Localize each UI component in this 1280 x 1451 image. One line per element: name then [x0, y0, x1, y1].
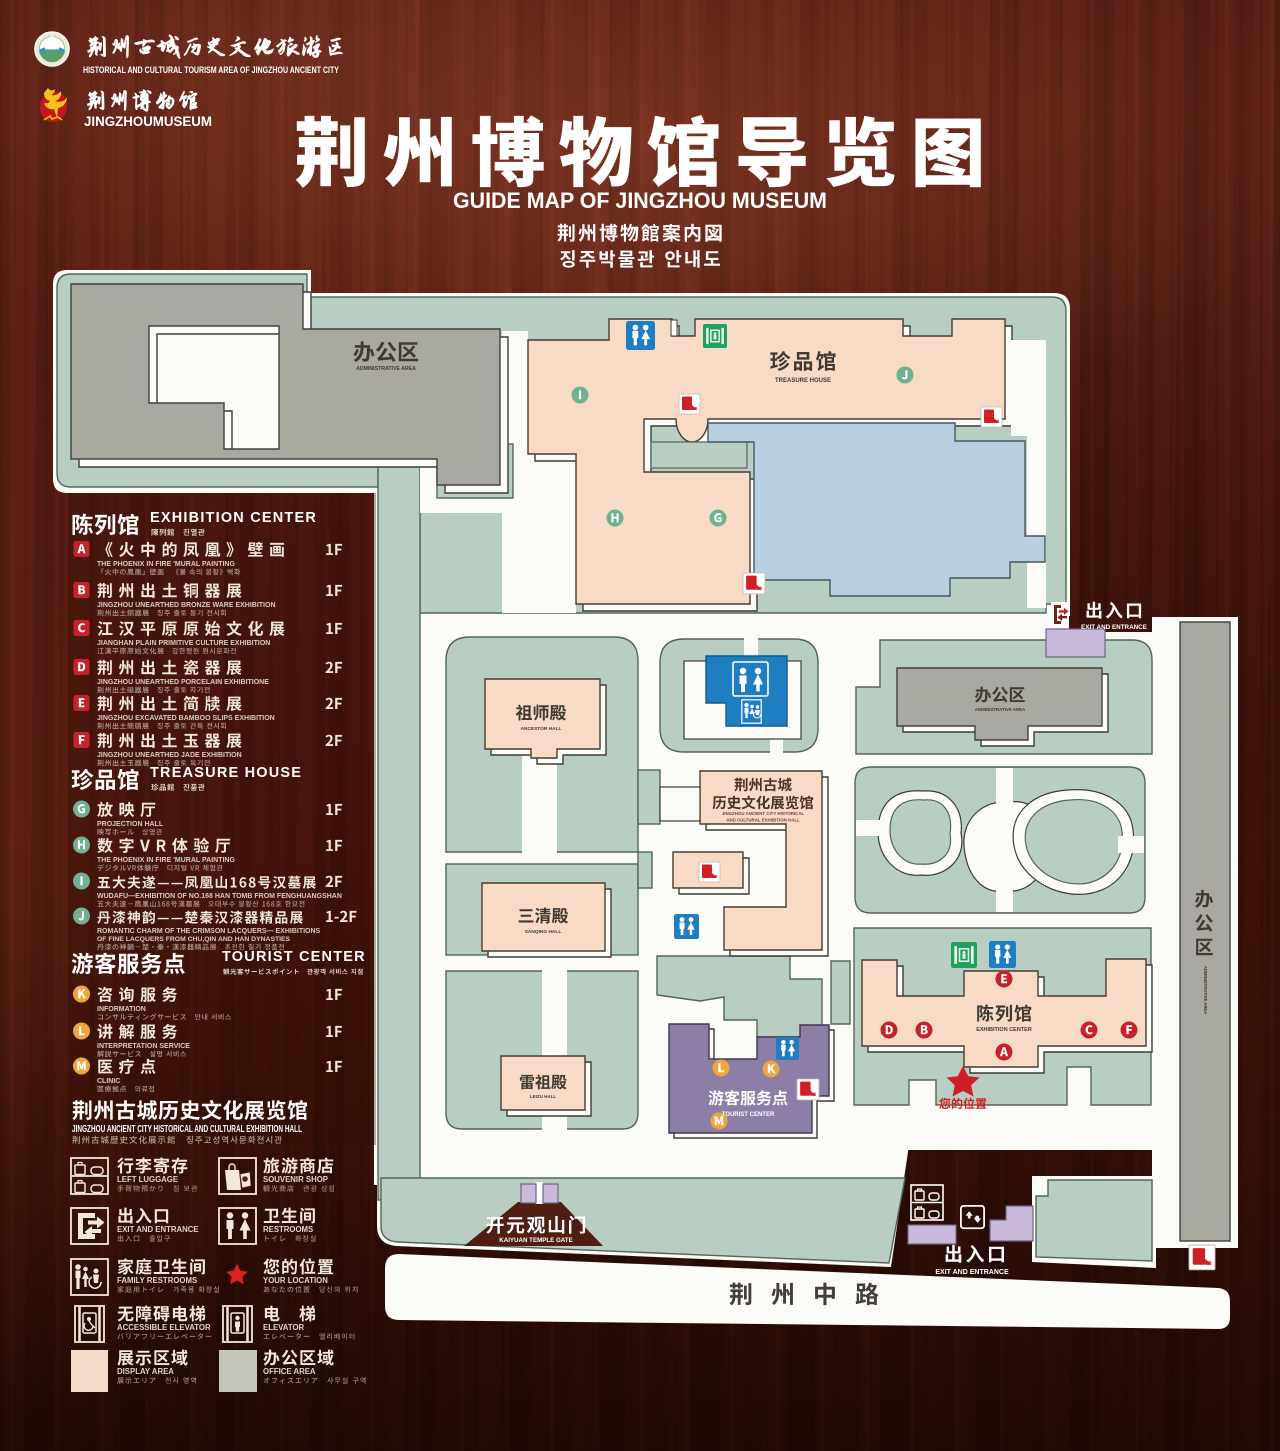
svg-text:AND CULTURAL EXHIBITION HALL: AND CULTURAL EXHIBITION HALL: [726, 818, 800, 823]
svg-text:TOURIST CENTER: TOURIST CENTER: [222, 949, 366, 965]
svg-text:ACCESSIBLE ELEVATOR: ACCESSIBLE ELEVATOR: [117, 1323, 211, 1332]
svg-text:SANQING HALL: SANQING HALL: [525, 929, 562, 935]
svg-text:ROMANTIC CHARM OF THE CRIMSON: ROMANTIC CHARM OF THE CRIMSON LACQUERS— …: [97, 928, 321, 935]
svg-text:TREASURE HOUSE: TREASURE HOUSE: [150, 765, 302, 781]
svg-text:JIANGHAN PLAIN PRIMITIVE CULTU: JIANGHAN PLAIN PRIMITIVE CULTURE EXHIBIT…: [97, 640, 270, 647]
svg-text:ELEVATOR: ELEVATOR: [263, 1323, 305, 1332]
svg-text:ADMINISTRATIVE AREA: ADMINISTRATIVE AREA: [1203, 966, 1208, 1014]
svg-text:KAIYUAN TEMPLE GATE: KAIYUAN TEMPLE GATE: [499, 1237, 572, 1244]
svg-text:LEFT LUGGAGE: LEFT LUGGAGE: [117, 1175, 178, 1184]
svg-text:JINGZHOU ANCIENT CITY HISTORIC: JINGZHOU ANCIENT CITY HISTORICAL: [722, 811, 805, 816]
svg-text:CLINIC: CLINIC: [97, 1078, 120, 1085]
svg-text:FAMILY RESTROOMS: FAMILY RESTROOMS: [117, 1276, 197, 1285]
svg-text:JINGZHOU UNEARTHED JADE EXHIBI: JINGZHOU UNEARTHED JADE EXHIBITION: [97, 752, 242, 759]
svg-text:EXHIBITION CENTER: EXHIBITION CENTER: [150, 510, 317, 526]
svg-text:JINGZHOU EXCAVATED BAMBOO SLIP: JINGZHOU EXCAVATED BAMBOO SLIPS EXHIBITI…: [97, 715, 275, 722]
svg-text:YOUR LOCATION: YOUR LOCATION: [263, 1276, 328, 1285]
svg-text:JINGZHOU ANCIENT CITY HISTORIC: JINGZHOU ANCIENT CITY HISTORICAL AND CUL…: [72, 1124, 302, 1135]
svg-text:INTERPRETATION SERVICE: INTERPRETATION SERVICE: [97, 1043, 190, 1050]
svg-text:INFORMATION: INFORMATION: [97, 1006, 146, 1013]
svg-text:TREASURE HOUSE: TREASURE HOUSE: [775, 378, 831, 384]
svg-text:JINGZHOU UNEARTHED PORCELAIN E: JINGZHOU UNEARTHED PORCELAIN EXHIBITIONE: [97, 679, 269, 686]
svg-text:EXIT AND ENTRANCE: EXIT AND ENTRANCE: [935, 1269, 1009, 1276]
svg-text:JINGZHOUMUSEUM: JINGZHOUMUSEUM: [84, 114, 212, 129]
svg-text:JINGZHOU UNEARTHED BRONZE WARE: JINGZHOU UNEARTHED BRONZE WARE EXHIBITIO…: [97, 602, 276, 609]
svg-text:HISTORICAL AND CULTURAL TOURIS: HISTORICAL AND CULTURAL TOURISM AREA OF …: [83, 65, 339, 76]
svg-text:DISPLAY AREA: DISPLAY AREA: [117, 1367, 174, 1376]
svg-text:LEIZU HALL: LEIZU HALL: [530, 1094, 556, 1099]
svg-text:OFFICE AREA: OFFICE AREA: [263, 1367, 316, 1376]
svg-text:PROJECTION HALL: PROJECTION HALL: [97, 821, 164, 828]
svg-text:WUDAFU—EXHIBITION OF NO.168 HA: WUDAFU—EXHIBITION OF NO.168 HAN TOMB FRO…: [97, 893, 342, 900]
svg-text:THE PHOENIX IN FIRE 'MURAL PAI: THE PHOENIX IN FIRE 'MURAL PAINTING: [97, 857, 235, 864]
svg-text:TOURIST CENTER: TOURIST CENTER: [722, 1112, 775, 1118]
svg-text:ADMINISTRATIVE AREA: ADMINISTRATIVE AREA: [975, 707, 1026, 712]
svg-text:OF FINE LACQUERS FROM CHU,QIN: OF FINE LACQUERS FROM CHU,QIN AND HAN DY…: [97, 936, 291, 943]
svg-text:SOUVENIR SHOP: SOUVENIR SHOP: [263, 1175, 328, 1184]
svg-text:GUIDE MAP OF JINGZHOU MUSEUM: GUIDE MAP OF JINGZHOU MUSEUM: [453, 188, 827, 213]
svg-text:EXIT AND ENTRANCE: EXIT AND ENTRANCE: [1081, 624, 1147, 631]
svg-text:ADMINISTRATIVE AREA: ADMINISTRATIVE AREA: [356, 366, 416, 372]
svg-text:THE PHOENIX IN FIRE 'MURAL PAI: THE PHOENIX IN FIRE 'MURAL PAINTING: [97, 561, 235, 568]
svg-text:RESTROOMS: RESTROOMS: [263, 1225, 313, 1234]
svg-text:EXIT AND ENTRANCE: EXIT AND ENTRANCE: [117, 1225, 199, 1234]
svg-text:ANCESTOR HALL: ANCESTOR HALL: [521, 726, 562, 732]
svg-text:EXHIBITION CENTER: EXHIBITION CENTER: [976, 1027, 1032, 1033]
